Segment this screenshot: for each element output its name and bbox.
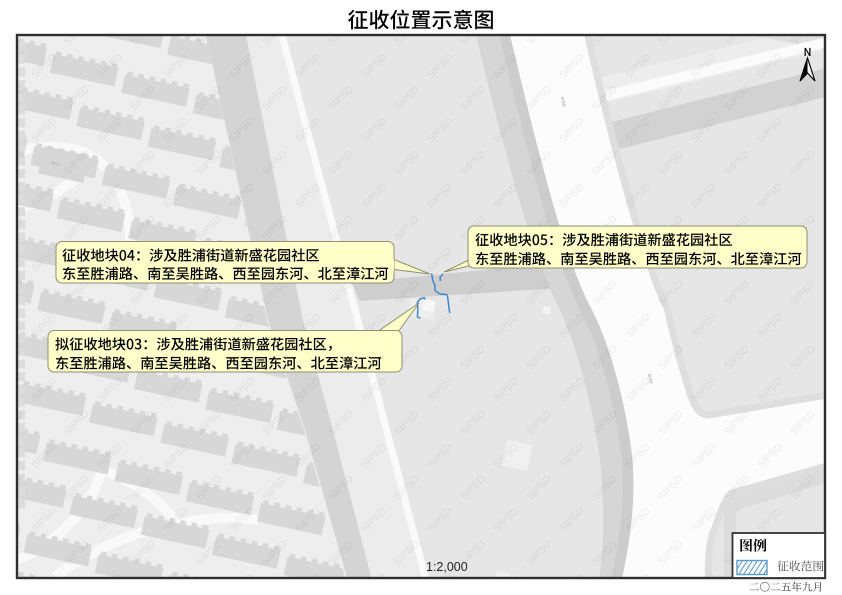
svg-text:1:2,000: 1:2,000 bbox=[426, 560, 468, 574]
